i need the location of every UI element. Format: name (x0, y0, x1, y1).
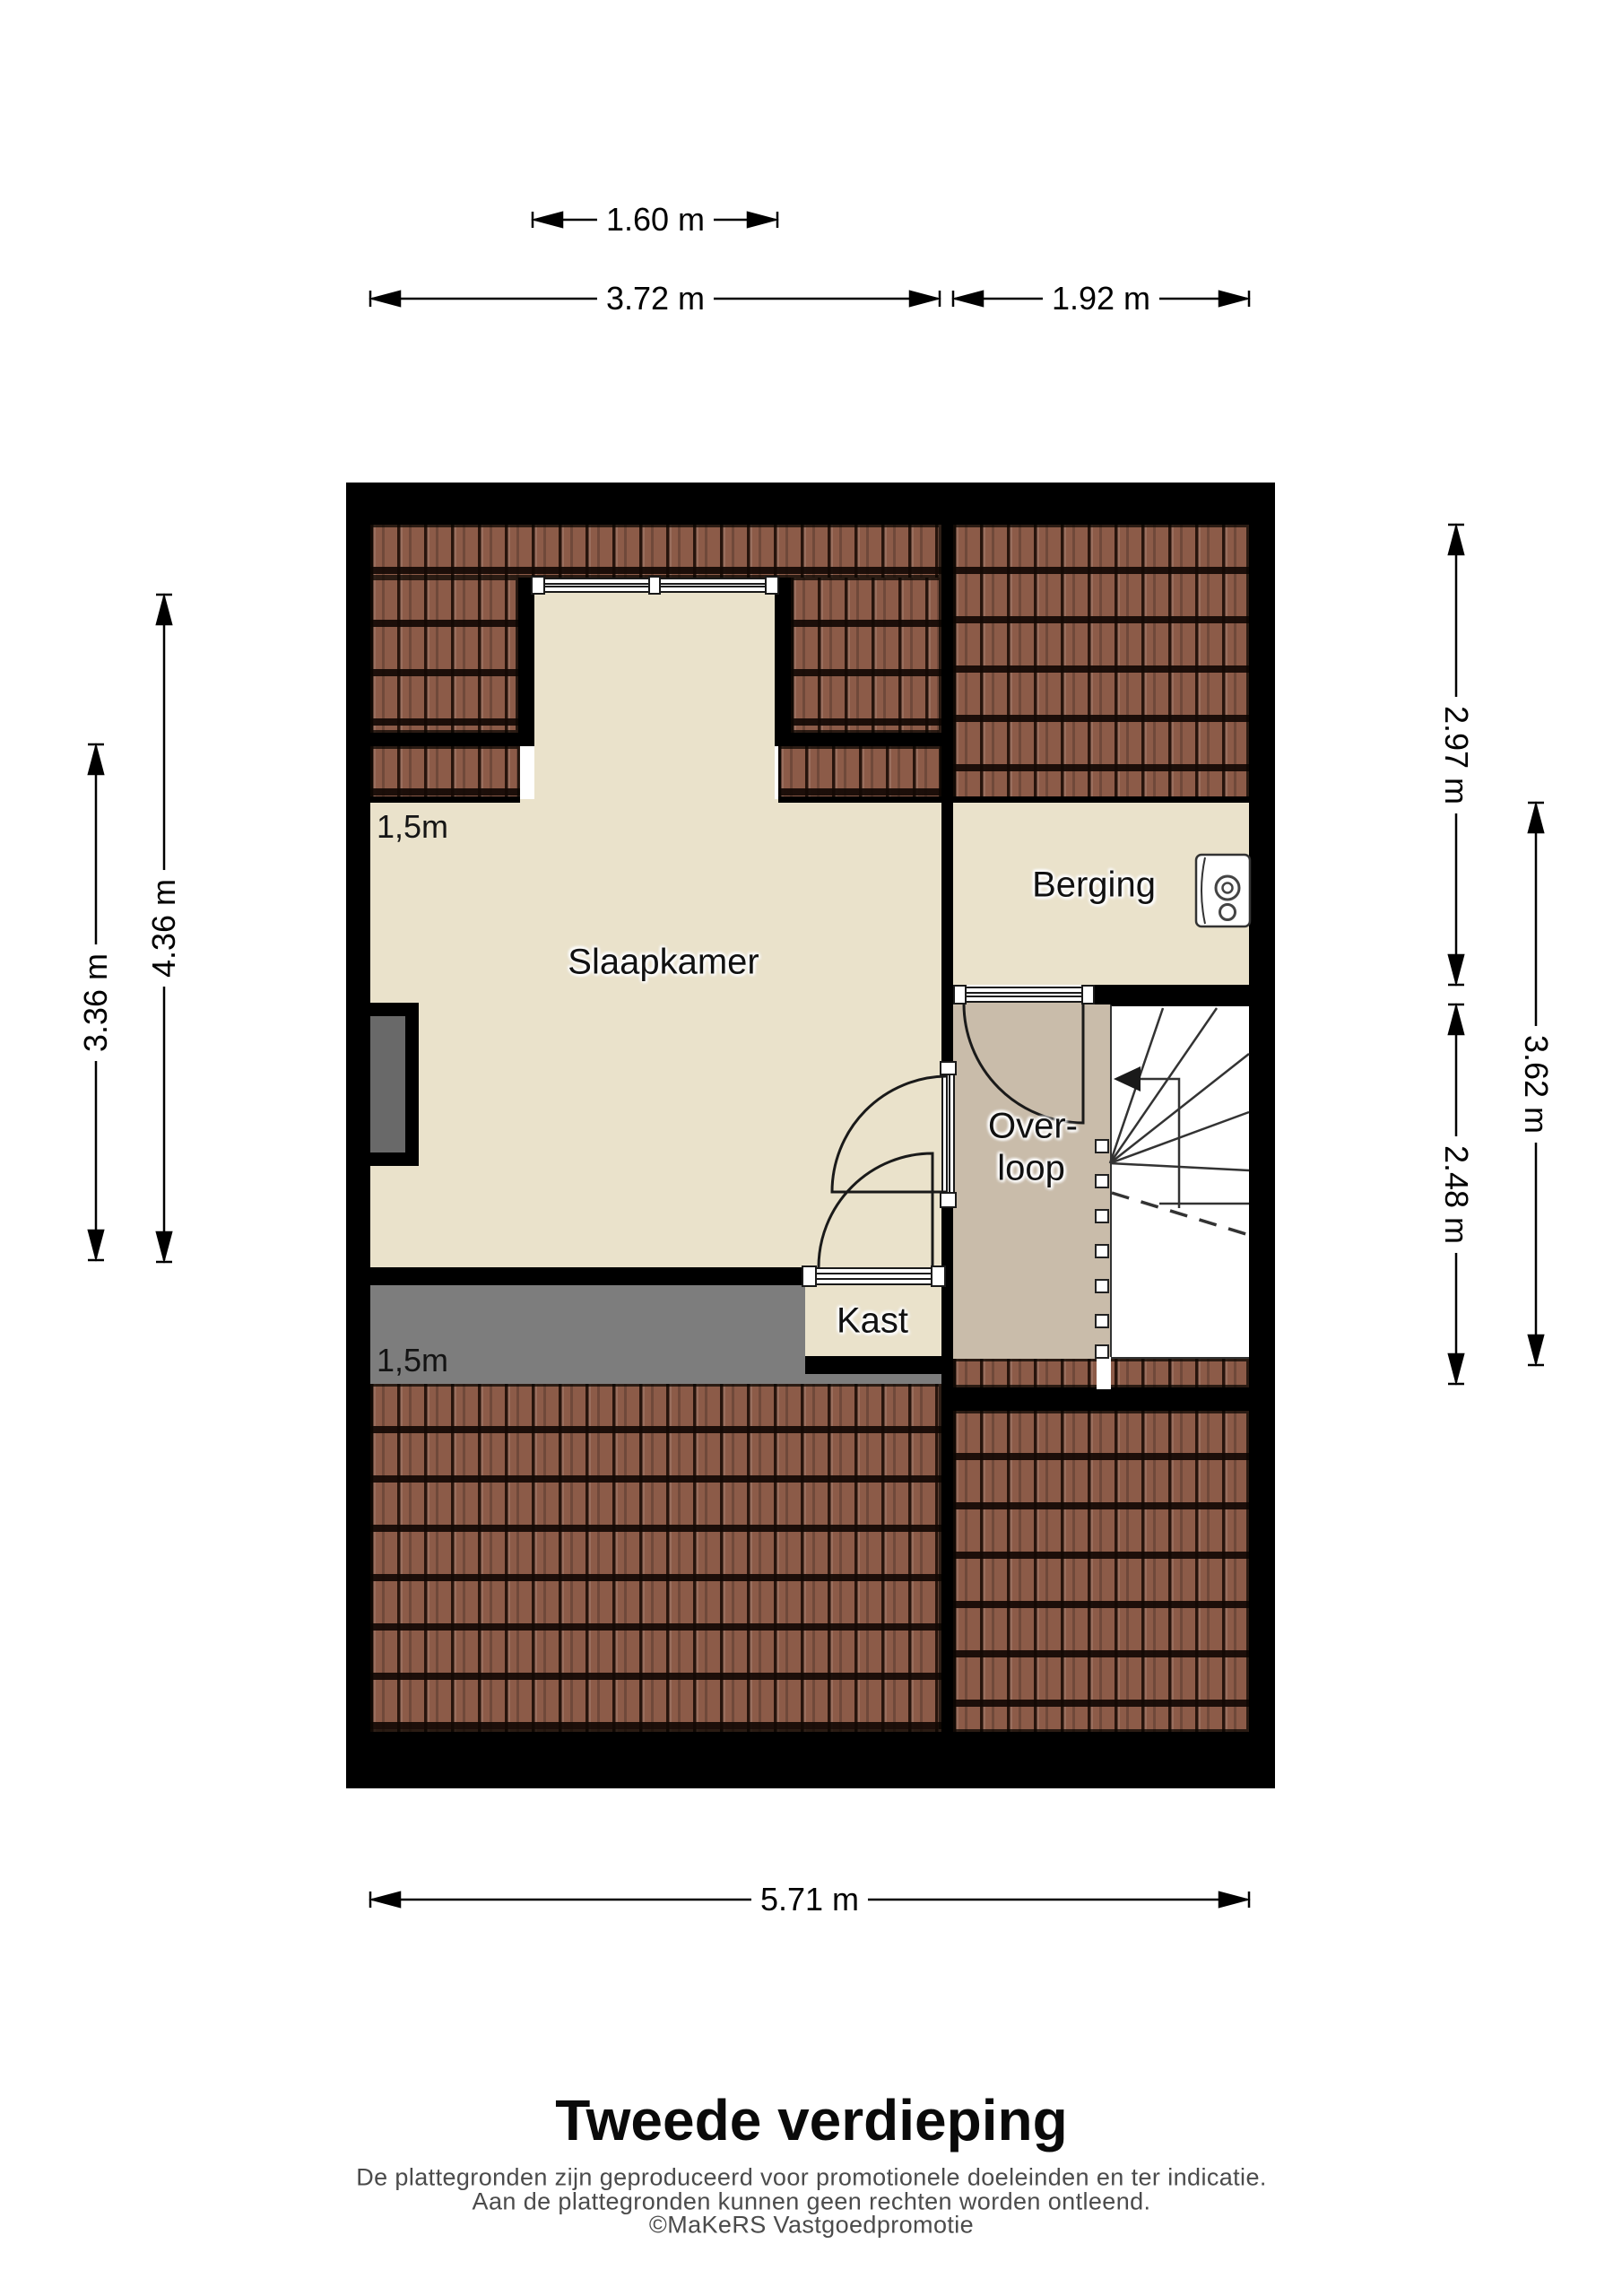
footer-credit: ©MaKeRS Vastgoedpromotie (649, 2212, 974, 2239)
dim-label-bottom: 5.71 m (751, 1881, 868, 1918)
dim-label-top-right: 1.92 m (1043, 280, 1159, 317)
room-label-overloop-line1: Over- (988, 1107, 1078, 1147)
door-frame-overloop (955, 987, 1094, 1003)
roof-bottom-right (953, 1411, 1249, 1732)
floorplan-page: 1.60 m 3.72 m 1.92 m 5.71 m 3.36 m 4.36 … (0, 0, 1622, 2296)
dim-label-right-top: 2.97 m (1437, 697, 1475, 813)
roof-berging-side (953, 525, 1249, 799)
dim-label-left-inner: 4.36 m (145, 870, 183, 987)
room-label-slaapkamer: Slaapkamer (568, 943, 759, 983)
wall-dormer-right (775, 578, 791, 735)
knee-wall-label-top: 1,5m (377, 808, 448, 846)
wall-dormer-left (518, 578, 534, 735)
wall-dormer-band-right (775, 733, 941, 746)
stairwell (1110, 1003, 1249, 1359)
floor-slaapkamer (370, 799, 941, 1285)
wall-kast-bottom (805, 1356, 948, 1374)
door-post (940, 1192, 957, 1208)
roof-right-lower (778, 746, 941, 799)
room-label-berging: Berging (1032, 865, 1156, 906)
wall-mid-vertical-upper (941, 525, 953, 1063)
wall-berging-bottom (1094, 985, 1275, 1004)
dim-label-window: 1.60 m (597, 201, 714, 239)
door-post (1081, 985, 1095, 1004)
door-post (802, 1265, 817, 1287)
dim-label-left-outer: 3.36 m (77, 944, 115, 1061)
page-title: Tweede verdieping (555, 2087, 1067, 2153)
knee-wall-band-under-kast (805, 1374, 941, 1384)
roof-top-band (370, 525, 941, 578)
window-post (648, 576, 661, 595)
roof-edge (370, 796, 520, 803)
window-post (531, 576, 545, 595)
wall-bottom-right-band (953, 1387, 1249, 1411)
wall-niche-inset (370, 1016, 405, 1152)
room-label-kast: Kast (837, 1301, 908, 1342)
roof-left-of-dormer (370, 578, 518, 733)
dim-label-right-full: 3.62 m (1517, 1026, 1555, 1143)
wall-outer-top (346, 483, 1275, 525)
door-post (953, 985, 967, 1004)
wall-outer-bottom (346, 1732, 1275, 1788)
roof-edge (778, 796, 941, 803)
door-post (931, 1265, 946, 1287)
door-frame-kast (805, 1267, 944, 1285)
dim-label-top-left: 3.72 m (597, 280, 714, 317)
dim-label-right-bottom: 2.48 m (1437, 1136, 1475, 1253)
window-post (765, 576, 779, 595)
floor-dormer (534, 593, 775, 799)
wall-outer-right (1249, 483, 1275, 1788)
roof-right-of-dormer (791, 578, 941, 733)
knee-wall-label-bottom: 1,5m (377, 1342, 448, 1379)
roof-left-lower (370, 746, 520, 799)
roof-bottom-left (370, 1384, 941, 1732)
roof-bottom-right-strip (953, 1359, 1249, 1387)
wall-slaapkamer-bottom (346, 1267, 805, 1285)
room-label-overloop-line2: loop (997, 1149, 1065, 1189)
door-post (940, 1061, 957, 1075)
wall-dormer-band-left (370, 733, 534, 746)
door-frame-slaapkamer (941, 1063, 955, 1208)
roof-edge (953, 796, 1249, 803)
